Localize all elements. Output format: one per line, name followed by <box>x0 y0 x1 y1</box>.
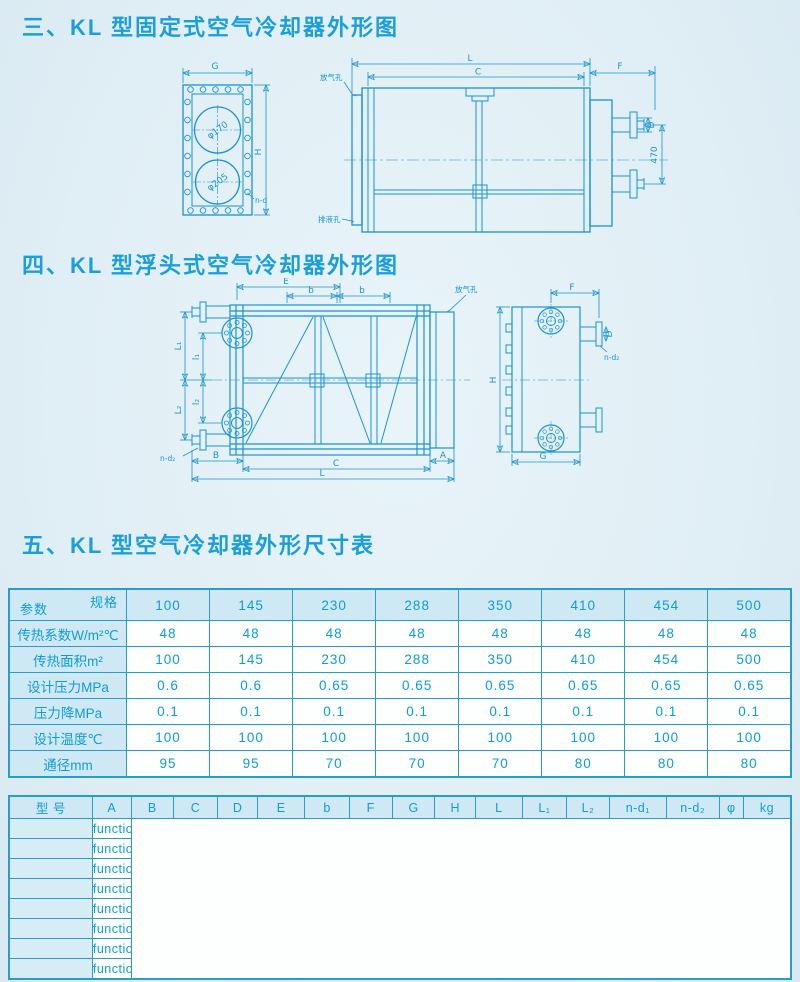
fixed-bottom-opening-diameter: φ205 <box>206 172 231 194</box>
dim-label-n-d2-side: n-d₂ <box>604 353 619 362</box>
table-row: 通径mm9595707070808080 <box>9 751 791 778</box>
dim-label-F-side: F <box>569 283 574 293</box>
row-header: 设计压力MPa <box>9 673 127 699</box>
table-cell: 100 <box>708 725 791 751</box>
column-header: L₂ <box>567 796 610 819</box>
table-cell: 500 <box>708 647 791 673</box>
table-cell: 0.65 <box>376 673 459 699</box>
table-cell: 100 <box>127 647 210 673</box>
dim-label-l1: l₁ <box>192 354 202 361</box>
table-row: function values() { [native code] } <box>9 899 791 919</box>
header-row: 规格参数100145230288350410454500 <box>9 589 791 621</box>
dim-label-b2: b <box>359 286 365 296</box>
page: { "page": { "background": "#e2eff5", "li… <box>0 0 800 982</box>
fixed-side-view: L C F D 470 放气孔 排液孔 <box>318 54 668 232</box>
table-cell: 100 <box>127 725 210 751</box>
table-cell: function values() { [native code] } <box>92 959 131 980</box>
table-row: function values() { [native code] } <box>9 839 791 859</box>
table-cell: 48 <box>708 621 791 647</box>
table-cell: 0.1 <box>210 699 293 725</box>
column-header: n-d₂ <box>666 796 719 819</box>
table-cell: function values() { [native code] } <box>92 919 131 939</box>
column-header: G <box>392 796 435 819</box>
table-cell: 0.1 <box>376 699 459 725</box>
section-title-floating-type: 四、KL 型浮头式空气冷却器外形图 <box>22 248 399 280</box>
table-cell: 0.65 <box>542 673 625 699</box>
column-header: 145 <box>210 589 293 621</box>
table-row: function values() { [native code] } <box>9 959 791 980</box>
table-cell: 100 <box>459 725 542 751</box>
table-cell: function values() { [native code] } <box>92 879 131 899</box>
table-row: function values() { [native code] } <box>9 939 791 959</box>
column-header: 410 <box>542 589 625 621</box>
dim-label-L-floating: L <box>319 469 324 479</box>
dim-label-H-side: H <box>489 377 499 384</box>
table-cell: 0.6 <box>127 673 210 699</box>
table-cell: 80 <box>542 751 625 778</box>
column-header: n-d₁ <box>609 796 666 819</box>
row-header <box>9 899 92 919</box>
dim-label-A: A <box>440 451 447 461</box>
column-header: b <box>305 796 349 819</box>
table-cell: 48 <box>376 621 459 647</box>
table-cell: 100 <box>293 725 376 751</box>
section-title-dimension-table: 五、KL 型空气冷却器外形尺寸表 <box>22 528 375 560</box>
fixed-end-view: φ170 φ205 G H n-d <box>183 62 270 215</box>
table-row: function values() { [native code] } <box>9 919 791 939</box>
table-cell: 0.65 <box>293 673 376 699</box>
specification-table: 规格参数100145230288350410454500传热系数W/m²℃484… <box>8 588 792 778</box>
table-cell: 80 <box>708 751 791 778</box>
table-cell: 95 <box>210 751 293 778</box>
table-cell: 100 <box>542 725 625 751</box>
table-cell: function values() { [native code] } <box>92 819 131 839</box>
table-cell: 100 <box>625 725 708 751</box>
row-header <box>9 959 92 980</box>
column-header: B <box>131 796 173 819</box>
table-cell: 0.1 <box>625 699 708 725</box>
column-header: 型 号 <box>9 796 92 819</box>
column-header: E <box>257 796 305 819</box>
table-row: 设计压力MPa0.60.60.650.650.650.650.650.65 <box>9 673 791 699</box>
dim-label-n-d: n-d <box>255 196 267 205</box>
floating-flange-top <box>222 318 252 348</box>
dim-label-L2: L₂ <box>174 405 184 414</box>
column-header: 288 <box>376 589 459 621</box>
table-cell: 70 <box>459 751 542 778</box>
row-header: 传热面积m² <box>9 647 127 673</box>
table-row: 传热系数W/m²℃4848484848484848 <box>9 621 791 647</box>
table-cell: 0.1 <box>708 699 791 725</box>
dim-label-D-side: D <box>605 330 615 337</box>
table-cell: 95 <box>127 751 210 778</box>
dim-label-L1: L₁ <box>174 341 184 350</box>
column-header: L₁ <box>522 796 566 819</box>
column-header: A <box>92 796 131 819</box>
model-dimension-table: 型 号ABCDEbFGHLL₁L₂n-d₁n-d₂φkgfunction val… <box>8 795 792 980</box>
table-row: function values() { [native code] } <box>9 859 791 879</box>
row-header <box>9 819 92 839</box>
table-cell: 100 <box>210 725 293 751</box>
column-header: φ <box>719 796 743 819</box>
table-cell: function values() { [native code] } <box>92 859 131 879</box>
dim-label-E: E <box>283 278 289 287</box>
corner-label-top: 规格 <box>90 592 118 611</box>
side-flange-bottom <box>534 421 568 455</box>
table-cell: 230 <box>293 647 376 673</box>
row-header: 设计温度℃ <box>9 725 127 751</box>
dim-label-470: 470 <box>650 146 660 163</box>
dim-label-B: B <box>213 451 219 461</box>
table-row: 设计温度℃100100100100100100100100 <box>9 725 791 751</box>
dim-label-b1: b <box>308 286 314 296</box>
table-row: function values() { [native code] } <box>9 819 791 839</box>
table-cell: 0.1 <box>542 699 625 725</box>
column-header: D <box>218 796 258 819</box>
vent-hole-label: 放气孔 <box>320 72 343 82</box>
table-cell: 100 <box>376 725 459 751</box>
table-cell: 48 <box>293 621 376 647</box>
column-header: F <box>349 796 392 819</box>
row-header: 压力降MPa <box>9 699 127 725</box>
table-cell: 288 <box>376 647 459 673</box>
row-header <box>9 839 92 859</box>
table-cell: 454 <box>625 647 708 673</box>
table-row: 传热面积m²100145230288350410454500 <box>9 647 791 673</box>
section-title-fixed-type: 三、KL 型固定式空气冷却器外形图 <box>22 10 399 42</box>
fixed-type-outline-drawing: φ170 φ205 G H n-d <box>0 50 800 246</box>
fixed-top-opening-diameter: φ170 <box>206 120 231 142</box>
table-cell: function values() { [native code] } <box>92 939 131 959</box>
table-cell: 80 <box>625 751 708 778</box>
table-cell: function values() { [native code] } <box>92 839 131 859</box>
row-header: 通径mm <box>9 751 127 778</box>
row-header <box>9 919 92 939</box>
table-cell: 350 <box>459 647 542 673</box>
table-cell: 0.65 <box>625 673 708 699</box>
table-cell: 410 <box>542 647 625 673</box>
floating-type-outline-drawing: E b b L₁ L₂ l₁ l₂ B C A L n-d₂ <box>0 278 800 526</box>
table-cell: 0.1 <box>127 699 210 725</box>
dim-label-n-d2-left: n-d₂ <box>160 454 175 463</box>
column-header: kg <box>743 796 791 819</box>
dim-label-F: F <box>617 62 622 72</box>
table-cell: 48 <box>542 621 625 647</box>
column-header: L <box>475 796 522 819</box>
table-cell: 48 <box>210 621 293 647</box>
table-cell: function values() { [native code] } <box>92 899 131 919</box>
table-cell: 48 <box>127 621 210 647</box>
corner-label-bottom: 参数 <box>20 599 48 618</box>
table-row: function values() { [native code] } <box>9 879 791 899</box>
table-cell: 48 <box>459 621 542 647</box>
column-header: 500 <box>708 589 791 621</box>
floating-front-view: E b b L₁ L₂ l₁ l₂ B C A L n-d₂ <box>160 278 478 482</box>
table-cell: 70 <box>376 751 459 778</box>
column-header: 230 <box>293 589 376 621</box>
column-header: 454 <box>625 589 708 621</box>
dim-label-G-side: G <box>540 452 547 462</box>
drain-hole-label: 排液孔 <box>318 214 341 224</box>
corner-cell: 规格参数 <box>9 589 127 621</box>
column-header: H <box>435 796 476 819</box>
dim-label-L: L <box>467 54 472 64</box>
table-cell: 0.1 <box>459 699 542 725</box>
row-header <box>9 859 92 879</box>
table-cell: 0.65 <box>459 673 542 699</box>
dim-label-l2: l₂ <box>192 399 202 406</box>
row-header: 传热系数W/m²℃ <box>9 621 127 647</box>
table-row: 压力降MPa0.10.10.10.10.10.10.10.1 <box>9 699 791 725</box>
floating-vent-hole-label: 放气孔 <box>455 284 478 294</box>
header-row: 型 号ABCDEbFGHLL₁L₂n-d₁n-d₂φkg <box>9 796 791 819</box>
row-header <box>9 939 92 959</box>
table-cell: 0.65 <box>708 673 791 699</box>
column-header: 350 <box>459 589 542 621</box>
table-cell: 0.1 <box>293 699 376 725</box>
column-header: C <box>173 796 217 819</box>
side-flange-top <box>534 304 568 338</box>
column-header: 100 <box>127 589 210 621</box>
table-cell: 70 <box>293 751 376 778</box>
dim-label-C: C <box>475 68 481 78</box>
dim-label-C: C <box>333 459 339 469</box>
table-cell: 0.6 <box>210 673 293 699</box>
floating-side-view: F D n-d₂ H G <box>489 283 619 466</box>
dim-label-G: G <box>212 62 219 72</box>
dim-label-H: H <box>254 149 264 156</box>
table-cell: 48 <box>625 621 708 647</box>
row-header <box>9 879 92 899</box>
table-cell: 145 <box>210 647 293 673</box>
